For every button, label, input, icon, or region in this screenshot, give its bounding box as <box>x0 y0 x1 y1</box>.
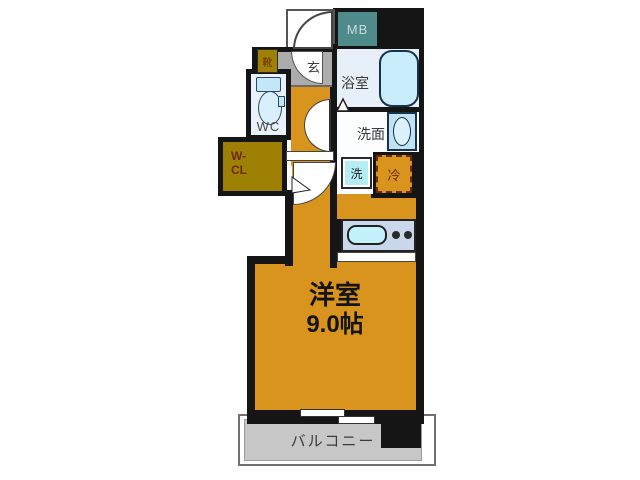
sliding-window <box>338 416 375 424</box>
main-room-label: 洋室 9.0帖 <box>254 280 416 340</box>
wcl-line2: CL <box>231 163 247 177</box>
main-room-name: 洋室 <box>254 280 416 311</box>
toilet-label: WC <box>248 119 289 134</box>
shoe-cabinet: 靴 <box>257 49 278 73</box>
wash-basin <box>393 117 411 146</box>
toilet-flush-handle <box>278 96 285 107</box>
refrigerator-space: 冷 <box>376 155 412 193</box>
kitchen-sink <box>347 225 387 245</box>
bathtub <box>379 50 419 107</box>
washing-machine-space: 洗 <box>341 157 372 189</box>
meter-box: MB <box>338 12 377 46</box>
floor-plan: 浴室 WC W- CL 洗面 洗 冷 靴 MB 玄 洋室 9.0帖 バルコニー <box>0 0 640 480</box>
walk-in-closet <box>218 137 287 196</box>
wall-corridor-left <box>285 190 293 266</box>
washing-machine-label: 洗 <box>345 161 368 185</box>
door-threshold <box>286 151 334 161</box>
stove-burner-icon <box>392 231 400 239</box>
toilet-tank <box>256 77 281 92</box>
walk-in-closet-label: W- CL <box>231 150 247 178</box>
bathroom-label: 浴室 <box>341 73 369 93</box>
main-room-size: 9.0帖 <box>254 311 416 340</box>
kitchen-counter-front <box>337 252 416 262</box>
balcony-label: バルコニー <box>244 430 422 451</box>
stove-burner-icon <box>404 231 412 239</box>
washroom-label: 洗面 <box>357 124 385 144</box>
wall-counter-stub <box>332 219 341 252</box>
entrance-label: 玄 <box>307 57 320 76</box>
wcl-line1: W- <box>231 149 246 163</box>
